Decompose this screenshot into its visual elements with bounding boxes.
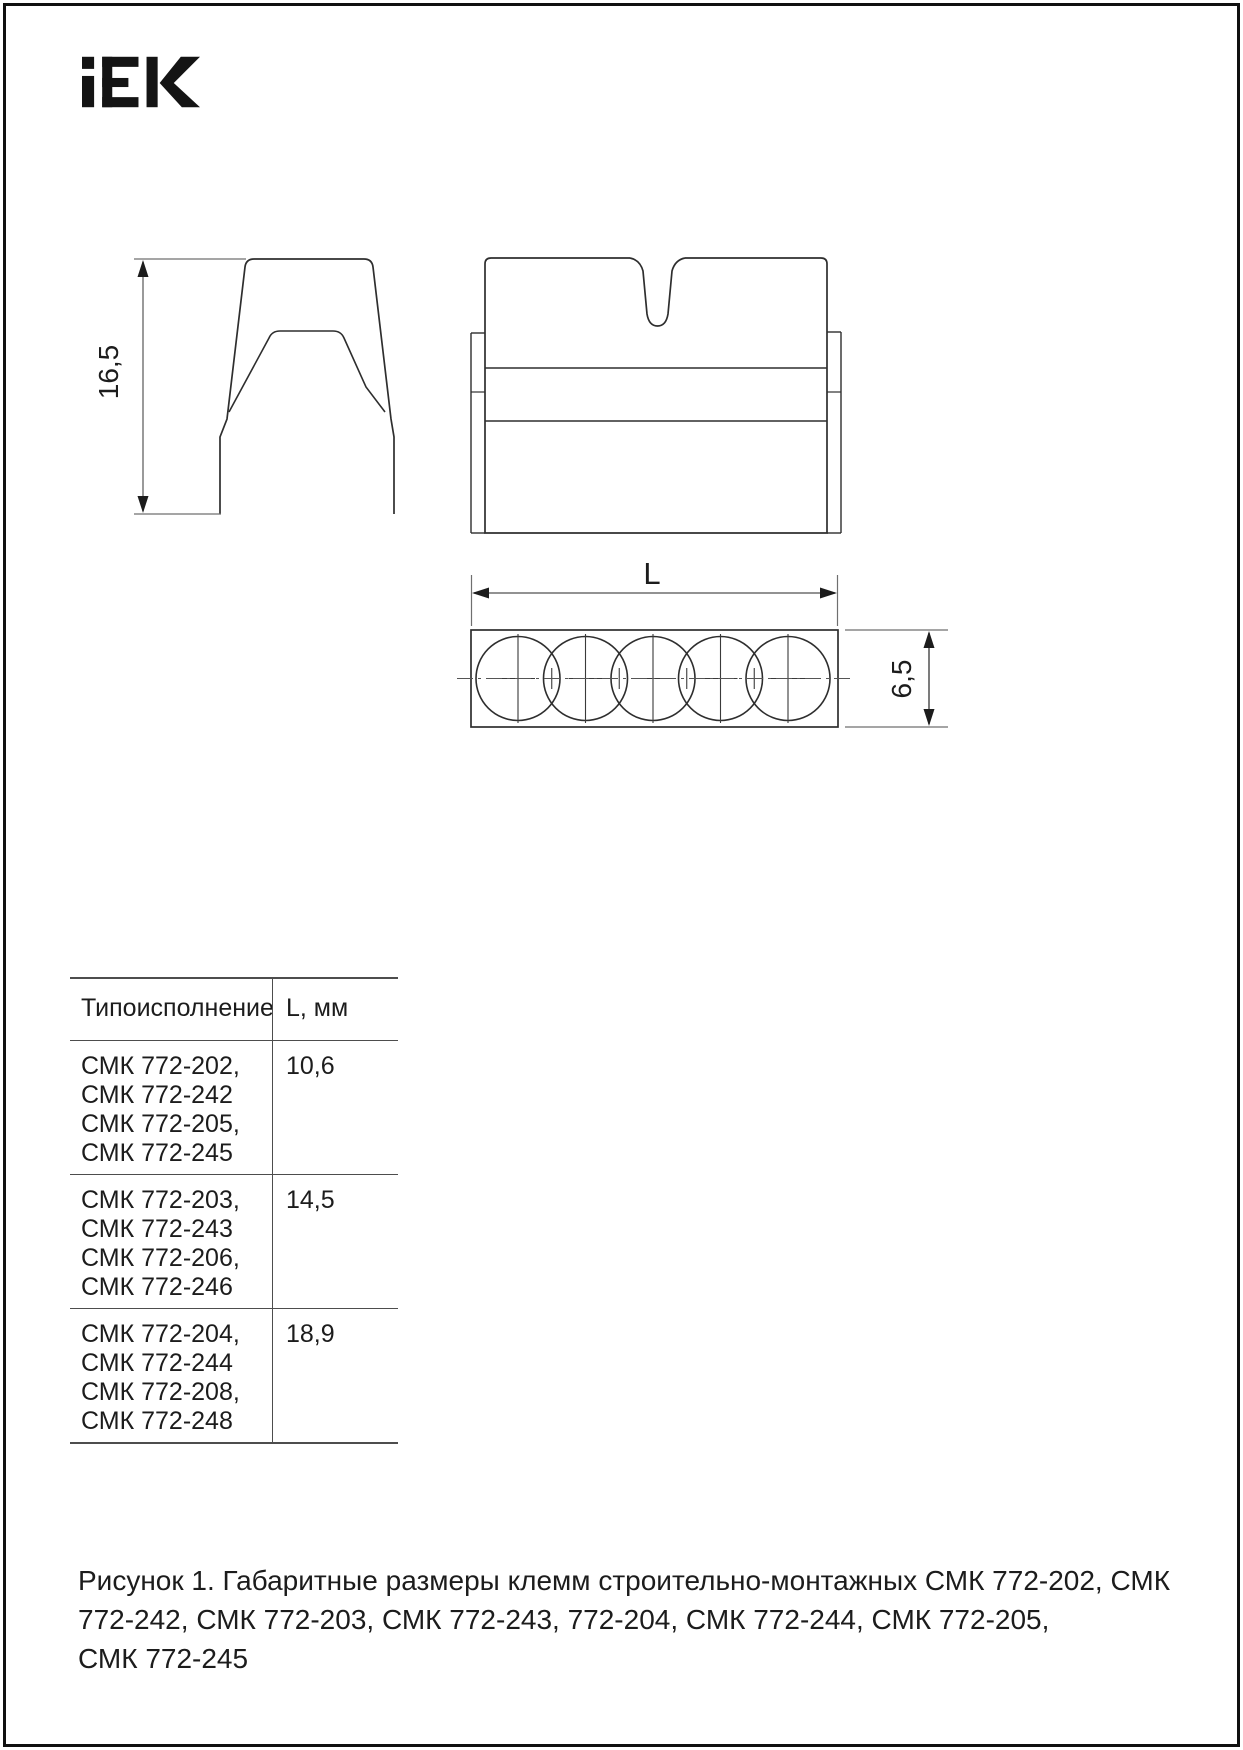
front-view-left-tab	[471, 333, 485, 533]
depth-dimension: 6,5	[845, 630, 948, 727]
table-cell-models: СМК 772-203, СМК 772-243 СМК 772-206, СМ…	[70, 1175, 272, 1308]
caption-line: 772-242, СМК 772-203, СМК 772-243, 772-2…	[78, 1600, 1188, 1639]
caption-line: Рисунок 1. Габаритные размеры клемм стро…	[78, 1561, 1188, 1600]
height-dimension: 16,5	[93, 259, 246, 514]
bottom-view-drawing: L 6,5	[457, 556, 948, 727]
height-dim-label: 16,5	[93, 345, 124, 400]
depth-dim-label: 6,5	[886, 660, 917, 699]
dimension-table: Типоисполнение L, мм СМК 772-202, СМК 77…	[70, 977, 398, 1444]
caption-line: СМК 772-245	[78, 1639, 1188, 1678]
figure-caption: Рисунок 1. Габаритные размеры клемм стро…	[78, 1561, 1188, 1678]
table-row: СМК 772-204, СМК 772-244 СМК 772-208, СМ…	[70, 1308, 398, 1442]
table-row: СМК 772-202, СМК 772-242 СМК 772-205, СМ…	[70, 1040, 398, 1174]
table-cell-models: СМК 772-202, СМК 772-242 СМК 772-205, СМ…	[70, 1041, 272, 1174]
front-view-right-tab	[827, 332, 841, 533]
length-dim-label: L	[643, 556, 660, 591]
length-dimension: L	[472, 556, 838, 626]
table-cell-length: 14,5	[272, 1175, 398, 1308]
table-cell-length: 10,6	[272, 1041, 398, 1174]
side-view-drawing: 16,5	[93, 259, 394, 514]
table-header-row: Типоисполнение L, мм	[70, 979, 398, 1040]
table-row: СМК 772-203, СМК 772-243 СМК 772-206, СМ…	[70, 1174, 398, 1308]
front-view-drawing	[471, 258, 841, 533]
datasheet-page: { "page": { "brand": "IEK", "type": "tec…	[0, 0, 1243, 1750]
technical-drawing: 16,5	[0, 0, 1243, 1750]
table-header-length: L, мм	[272, 979, 398, 1040]
table-header-type: Типоисполнение	[70, 979, 272, 1040]
table-cell-length: 18,9	[272, 1309, 398, 1442]
table-cell-models: СМК 772-204, СМК 772-244 СМК 772-208, СМ…	[70, 1309, 272, 1442]
